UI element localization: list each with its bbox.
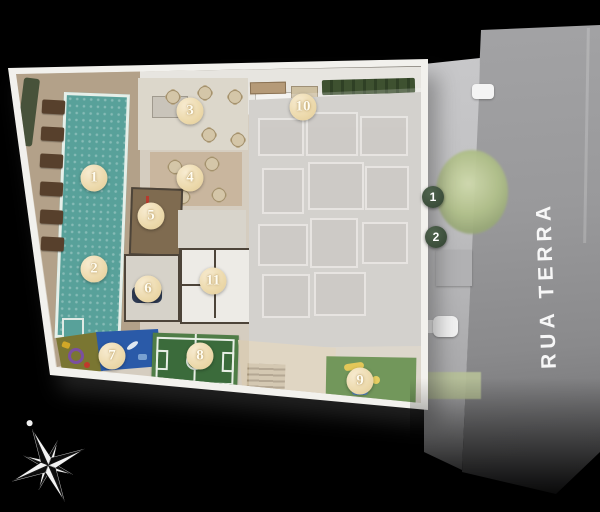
- amenity-marker-4[interactable]: 4: [177, 165, 204, 192]
- play-toy: [138, 354, 147, 360]
- street-marker-1[interactable]: 1: [422, 186, 444, 208]
- round-table: [205, 157, 219, 171]
- amenity-marker-5[interactable]: 5: [138, 203, 165, 230]
- round-table: [228, 90, 242, 104]
- amenity-marker-7[interactable]: 7: [99, 343, 126, 370]
- corridor: [178, 210, 246, 248]
- amenity-marker-1[interactable]: 1: [81, 165, 108, 192]
- amenity-marker-6[interactable]: 6: [135, 276, 162, 303]
- amenity-marker-2[interactable]: 2: [81, 256, 108, 283]
- round-table: [166, 90, 180, 104]
- amenity-marker-8[interactable]: 8: [187, 343, 214, 370]
- court-goal: [222, 352, 235, 372]
- amenity-marker-3[interactable]: 3: [177, 98, 204, 125]
- round-table: [202, 128, 216, 142]
- sun-lounger: [41, 236, 65, 251]
- sun-lounger: [40, 181, 64, 196]
- site-plan-scene: RUA TERRA: [0, 0, 600, 512]
- street-marker-2[interactable]: 2: [425, 226, 447, 248]
- amenity-marker-9[interactable]: 9: [347, 368, 374, 395]
- play-toy: [68, 348, 84, 364]
- court-goal: [156, 350, 169, 370]
- play-toy: [84, 362, 90, 368]
- grill-counter: [250, 82, 286, 95]
- sun-lounger: [42, 99, 66, 114]
- sun-lounger: [40, 153, 64, 168]
- swimming-pool: [55, 92, 130, 340]
- amenity-marker-10[interactable]: 10: [290, 94, 317, 121]
- round-table: [231, 133, 245, 147]
- round-table: [212, 188, 226, 202]
- round-table: [198, 86, 212, 100]
- sun-lounger: [41, 126, 65, 141]
- sun-lounger: [40, 209, 64, 224]
- bottom-shadow: [410, 378, 600, 512]
- amenity-marker-11[interactable]: 11: [200, 268, 227, 295]
